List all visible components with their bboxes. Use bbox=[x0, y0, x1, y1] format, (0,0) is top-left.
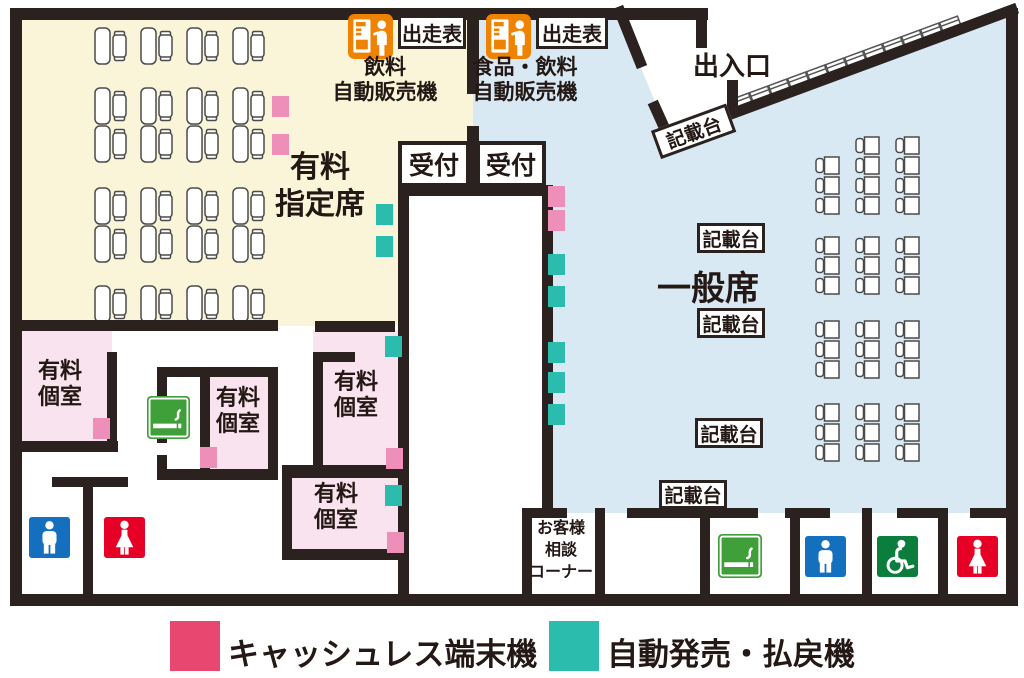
chair bbox=[159, 35, 172, 57]
ticket-machine-marker bbox=[385, 485, 402, 506]
desk bbox=[825, 237, 840, 254]
wall bbox=[157, 469, 278, 480]
chair bbox=[896, 239, 904, 253]
chair bbox=[159, 133, 172, 155]
chair bbox=[113, 233, 126, 255]
desk bbox=[905, 444, 920, 461]
chair bbox=[205, 233, 218, 255]
wall bbox=[282, 549, 404, 560]
chair bbox=[856, 363, 864, 377]
chair bbox=[856, 406, 864, 420]
chair bbox=[856, 259, 864, 273]
chair bbox=[816, 179, 824, 193]
desk bbox=[825, 177, 840, 194]
desk bbox=[141, 126, 156, 162]
ticket-machine-marker bbox=[376, 236, 393, 257]
wall bbox=[83, 477, 93, 595]
chair bbox=[251, 95, 264, 117]
paid-room-3-label-line2: 個室 bbox=[314, 395, 398, 420]
wheelchair-icon bbox=[877, 536, 918, 577]
desk bbox=[825, 444, 840, 461]
chair bbox=[896, 363, 904, 377]
wall bbox=[700, 508, 710, 600]
chair bbox=[856, 343, 864, 357]
wall bbox=[10, 8, 22, 606]
desk bbox=[187, 88, 202, 124]
wall bbox=[938, 508, 948, 600]
wall bbox=[10, 441, 118, 452]
wall bbox=[200, 367, 278, 377]
paid-reserved-zone-label-line2: 指定席 bbox=[250, 187, 390, 222]
chair bbox=[856, 323, 864, 337]
legend-cashless-swatch bbox=[170, 621, 220, 671]
desk bbox=[865, 424, 880, 441]
desk bbox=[95, 226, 110, 262]
smoking-area-icon bbox=[147, 396, 190, 439]
chair bbox=[856, 426, 864, 440]
desk bbox=[905, 361, 920, 378]
chair bbox=[159, 233, 172, 255]
paid-room-4-label-line1: 有料 bbox=[294, 481, 378, 506]
desk bbox=[865, 137, 880, 154]
wall bbox=[315, 321, 395, 332]
legend-ticket-machine-swatch bbox=[549, 621, 599, 671]
vending-machine-icon bbox=[486, 14, 531, 59]
vending-machine-icon bbox=[348, 14, 393, 59]
desk bbox=[233, 28, 248, 64]
chair bbox=[816, 239, 824, 253]
ticket-machine-marker bbox=[385, 336, 402, 357]
desk bbox=[905, 277, 920, 294]
customer-corner-label-line3: コーナー bbox=[524, 562, 598, 583]
desk bbox=[865, 197, 880, 214]
paid-room-1-label-line1: 有料 bbox=[18, 358, 102, 383]
floor-plan: 出走表 飲料 自動販売機 出走表 食品・飲料 自動販売機 出入口 受付 受付 有… bbox=[0, 0, 1024, 678]
chair bbox=[896, 259, 904, 273]
womens-toilet-icon bbox=[957, 536, 998, 577]
desk bbox=[825, 361, 840, 378]
desk bbox=[865, 177, 880, 194]
vending-drink-label-line1: 飲料 bbox=[325, 56, 445, 80]
chair bbox=[896, 406, 904, 420]
chair bbox=[896, 179, 904, 193]
desk bbox=[825, 321, 840, 338]
desk bbox=[233, 226, 248, 262]
desk bbox=[905, 257, 920, 274]
writing-stand-box-4: 記載台 bbox=[659, 480, 727, 509]
chair bbox=[896, 446, 904, 460]
wall bbox=[10, 8, 624, 20]
desk bbox=[95, 286, 110, 322]
desk bbox=[141, 226, 156, 262]
chair bbox=[251, 233, 264, 255]
desk bbox=[187, 188, 202, 224]
desk bbox=[825, 197, 840, 214]
wall bbox=[16, 320, 278, 331]
chair bbox=[113, 95, 126, 117]
mens-toilet-icon bbox=[805, 536, 846, 577]
desk bbox=[95, 188, 110, 224]
entrance-label: 出入口 bbox=[688, 46, 776, 83]
chair bbox=[856, 446, 864, 460]
cashless-terminal-marker bbox=[386, 448, 403, 469]
chair bbox=[856, 239, 864, 253]
desk bbox=[233, 188, 248, 224]
racecard-box-2: 出走表 bbox=[536, 15, 608, 49]
chair bbox=[205, 35, 218, 57]
chair bbox=[205, 293, 218, 315]
customer-corner-label-line2: 相談 bbox=[524, 540, 598, 561]
desk bbox=[905, 424, 920, 441]
chair bbox=[896, 343, 904, 357]
chair bbox=[896, 139, 904, 153]
general-zone-label: 一般席 bbox=[648, 261, 768, 310]
paid-room-4-label-line2: 個室 bbox=[294, 507, 378, 532]
cashless-terminal-marker bbox=[200, 447, 217, 468]
desk bbox=[865, 321, 880, 338]
wall bbox=[790, 508, 800, 600]
chair bbox=[856, 179, 864, 193]
chair bbox=[816, 343, 824, 357]
desk bbox=[905, 404, 920, 421]
desk bbox=[825, 341, 840, 358]
legend-ticket-machine-label: 自動発売・払戻機 bbox=[607, 629, 855, 674]
desk bbox=[825, 424, 840, 441]
desk bbox=[865, 257, 880, 274]
desk bbox=[865, 404, 880, 421]
vending-food-label-line1: 食品・飲料 bbox=[455, 56, 595, 80]
chair bbox=[205, 133, 218, 155]
ticket-machine-marker bbox=[548, 342, 565, 363]
paid-room-3-label-line1: 有料 bbox=[314, 369, 398, 394]
desk bbox=[865, 361, 880, 378]
desk bbox=[865, 277, 880, 294]
chair bbox=[251, 35, 264, 57]
wall bbox=[627, 508, 758, 518]
desk bbox=[95, 28, 110, 64]
desk bbox=[905, 321, 920, 338]
chair bbox=[159, 293, 172, 315]
vending-drink-label-line2: 自動販売機 bbox=[325, 81, 445, 105]
desk bbox=[825, 277, 840, 294]
chair bbox=[816, 426, 824, 440]
desk bbox=[141, 188, 156, 224]
desk bbox=[865, 341, 880, 358]
desk bbox=[905, 197, 920, 214]
chair bbox=[113, 293, 126, 315]
chair bbox=[205, 95, 218, 117]
smoking-area-icon bbox=[718, 534, 762, 578]
writing-stand-box-3: 記載台 bbox=[695, 418, 763, 448]
desk bbox=[865, 157, 880, 174]
writing-stand-box-1: 記載台 bbox=[697, 223, 765, 253]
desk bbox=[905, 237, 920, 254]
wall bbox=[696, 8, 707, 48]
cashless-terminal-marker bbox=[387, 532, 404, 553]
chair bbox=[816, 259, 824, 273]
desk bbox=[233, 126, 248, 162]
ticket-machine-marker bbox=[548, 254, 565, 275]
chair bbox=[159, 95, 172, 117]
chair bbox=[856, 139, 864, 153]
chair bbox=[816, 199, 824, 213]
chair bbox=[205, 195, 218, 217]
chair bbox=[113, 35, 126, 57]
desk bbox=[187, 28, 202, 64]
legend-cashless-label: キャッシュレス端末機 bbox=[228, 629, 537, 674]
chair bbox=[113, 195, 126, 217]
cashless-terminal-marker bbox=[548, 210, 565, 231]
racecard-box-1: 出走表 bbox=[398, 15, 466, 49]
paid-room-2-label-line1: 有料 bbox=[196, 385, 280, 410]
cashless-terminal-marker bbox=[548, 186, 565, 207]
wall bbox=[970, 508, 1010, 518]
vending-food-label-line2: 自動販売機 bbox=[455, 81, 595, 105]
desk bbox=[905, 177, 920, 194]
ticket-machine-marker bbox=[548, 404, 565, 425]
desk bbox=[141, 28, 156, 64]
desk bbox=[233, 88, 248, 124]
desk bbox=[187, 126, 202, 162]
paid-room-1-label-line2: 個室 bbox=[18, 384, 102, 409]
ticket-machine-marker bbox=[548, 286, 565, 307]
chair bbox=[816, 406, 824, 420]
wall bbox=[897, 508, 940, 518]
chair bbox=[251, 293, 264, 315]
chair bbox=[896, 159, 904, 173]
reception-box-1: 受付 bbox=[398, 141, 470, 187]
wall bbox=[862, 508, 872, 600]
desk bbox=[141, 88, 156, 124]
chair bbox=[856, 159, 864, 173]
cashless-terminal-marker bbox=[272, 96, 289, 117]
chair bbox=[816, 279, 824, 293]
reception-box-2: 受付 bbox=[476, 141, 546, 187]
wall bbox=[313, 352, 355, 362]
writing-stand-box-2: 記載台 bbox=[697, 308, 765, 338]
desk bbox=[865, 444, 880, 461]
customer-corner-label-line1: お客様 bbox=[524, 518, 598, 539]
desk bbox=[905, 341, 920, 358]
desk bbox=[187, 286, 202, 322]
chair bbox=[113, 133, 126, 155]
paid-reserved-zone-label-line1: 有料 bbox=[250, 150, 390, 185]
desk bbox=[825, 157, 840, 174]
chair bbox=[896, 323, 904, 337]
desk bbox=[141, 286, 156, 322]
wall bbox=[282, 478, 292, 557]
desk bbox=[905, 137, 920, 154]
desk bbox=[95, 126, 110, 162]
desk bbox=[865, 237, 880, 254]
desk bbox=[905, 157, 920, 174]
chair bbox=[816, 159, 824, 173]
mens-toilet-icon bbox=[29, 517, 70, 558]
ticket-machine-marker bbox=[548, 372, 565, 393]
chair bbox=[896, 199, 904, 213]
chair bbox=[816, 363, 824, 377]
paid-room-2-label-line2: 個室 bbox=[196, 411, 280, 436]
chair bbox=[896, 279, 904, 293]
desk bbox=[825, 404, 840, 421]
desk bbox=[95, 88, 110, 124]
cashless-terminal-marker bbox=[93, 418, 110, 439]
chair bbox=[816, 323, 824, 337]
chair bbox=[816, 446, 824, 460]
chair bbox=[159, 195, 172, 217]
womens-toilet-icon bbox=[104, 517, 145, 558]
chair bbox=[856, 199, 864, 213]
desk bbox=[187, 226, 202, 262]
desk bbox=[825, 257, 840, 274]
chair bbox=[856, 279, 864, 293]
desk bbox=[233, 286, 248, 322]
chair bbox=[896, 426, 904, 440]
